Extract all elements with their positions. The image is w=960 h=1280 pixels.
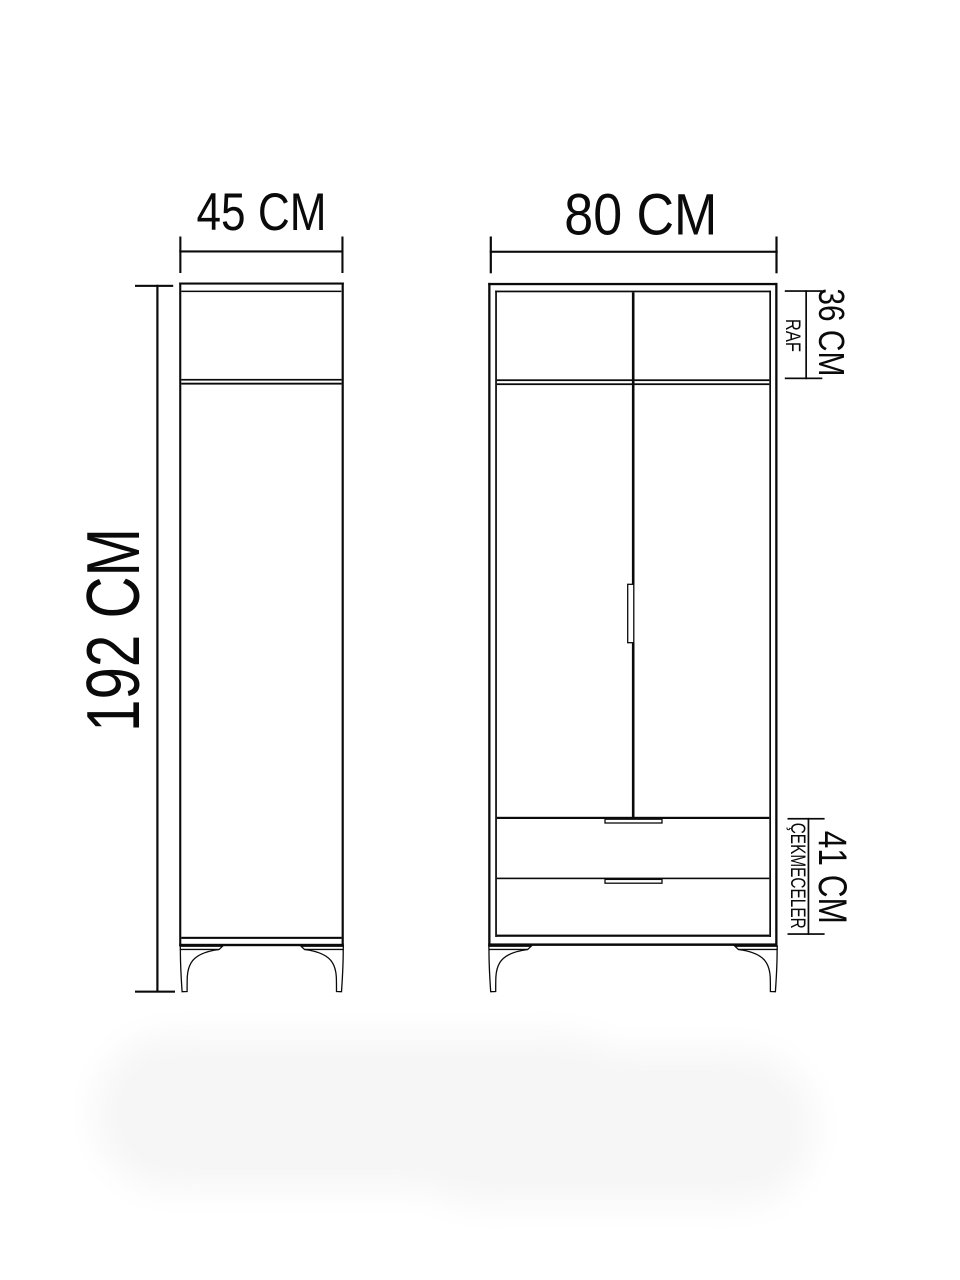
svg-text:45 CM: 45 CM [197, 183, 327, 242]
svg-text:41 CM: 41 CM [810, 831, 854, 924]
svg-text:RAF: RAF [781, 319, 804, 352]
svg-text:ÇEKMECELER: ÇEKMECELER [786, 823, 810, 929]
svg-text:80 CM: 80 CM [564, 183, 717, 248]
svg-text:36 CM: 36 CM [811, 288, 852, 376]
svg-text:192 CM: 192 CM [71, 528, 155, 732]
